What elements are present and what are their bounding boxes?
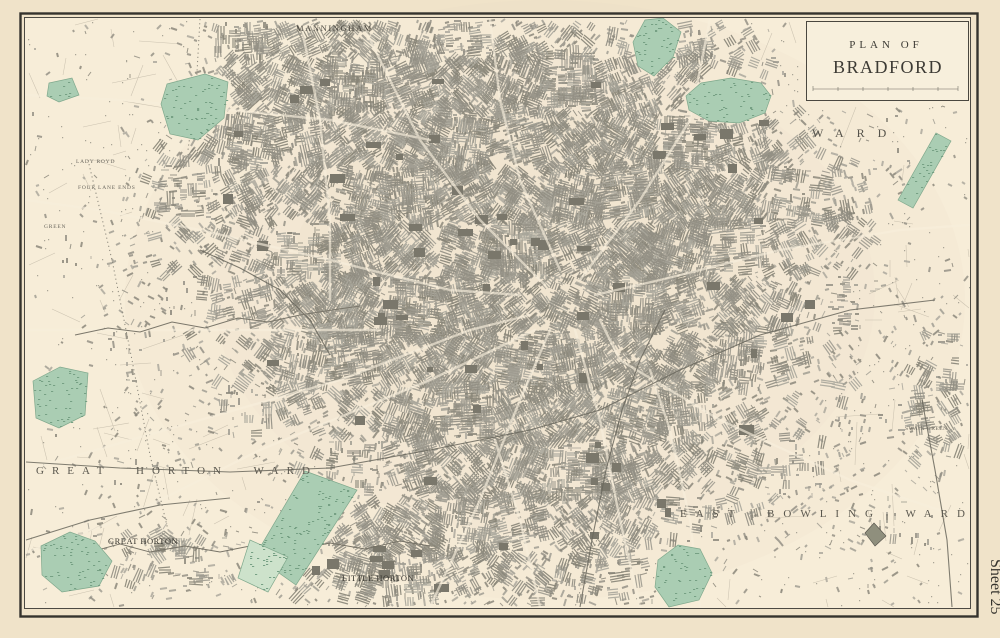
svg-text:Sheet 25: Sheet 25	[987, 559, 1000, 615]
svg-text:EAST BOWLING WARD: EAST BOWLING WARD	[680, 508, 974, 520]
svg-text:BRADFORD: BRADFORD	[833, 57, 943, 77]
svg-text:FOUR LANE ENDS: FOUR LANE ENDS	[78, 185, 136, 191]
svg-text:LADY ROYD: LADY ROYD	[76, 159, 115, 165]
svg-text:LITTLE HORTON: LITTLE HORTON	[342, 573, 414, 583]
svg-text:GREEN: GREEN	[44, 224, 66, 230]
svg-text:PLAN OF: PLAN OF	[849, 39, 923, 51]
svg-text:WARD: WARD	[812, 126, 899, 140]
svg-text:GREAT HORTON WARD: GREAT HORTON WARD	[36, 465, 318, 477]
svg-text:GREAT HORTON: GREAT HORTON	[108, 536, 178, 546]
svg-text:SWAIN GREEN: SWAIN GREEN	[905, 426, 948, 432]
svg-text:MANNINGHAM: MANNINGHAM	[296, 23, 373, 33]
